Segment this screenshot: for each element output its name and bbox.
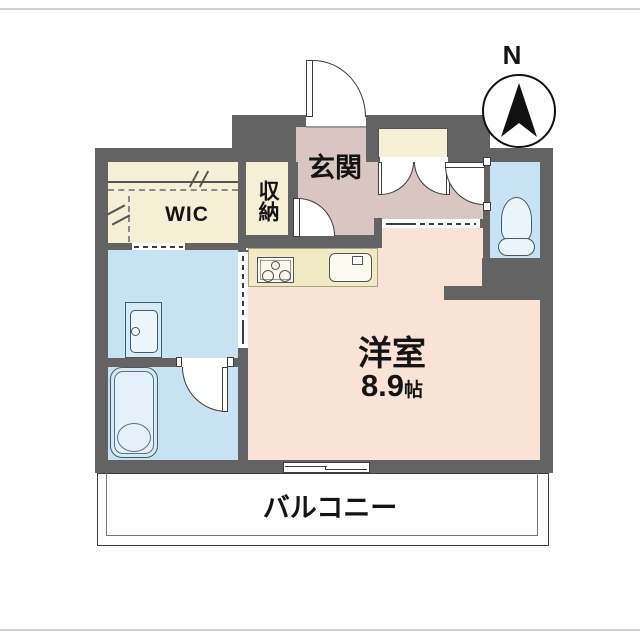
room-main-right (482, 300, 540, 460)
sliding-door-dashes (420, 223, 476, 225)
stove-burner (279, 270, 291, 282)
image-bottom-border (0, 629, 640, 631)
balcony-label: バルコニー (210, 486, 450, 525)
bathtub-icon (110, 367, 158, 458)
wic-shelf-dashed (108, 189, 238, 191)
wall-segment (540, 148, 553, 473)
washroom-sliding-door (238, 252, 248, 348)
main-room-sliding-door (382, 219, 480, 228)
faucet (352, 256, 363, 265)
toilet-door-leaf (445, 162, 485, 168)
wall-segment (443, 148, 553, 162)
wall-segment (296, 115, 306, 127)
storage-label: 収納 (254, 170, 280, 232)
entrance-label: 玄関 (296, 146, 374, 185)
kitchen-sink-icon (329, 253, 372, 282)
stove-burner (271, 261, 280, 270)
toilet-door-jamb (483, 157, 491, 166)
closet-door-left-leaf (378, 162, 382, 195)
wall-segment (374, 218, 382, 235)
compass-north-label: N (477, 40, 547, 71)
wall-segment (95, 148, 108, 473)
entrance-threshold (306, 126, 366, 128)
toilet-tank (498, 238, 535, 256)
stove-icon (257, 257, 294, 283)
hall-closet (378, 128, 448, 158)
wall-segment (238, 235, 382, 248)
compass-needle-icon (484, 76, 554, 146)
image-top-border (0, 8, 640, 10)
storage-door-leaf (293, 198, 300, 237)
stove-burner (262, 270, 274, 282)
sliding-door-dashes (242, 256, 244, 316)
bathroom-door-leaf (222, 367, 228, 412)
compass-icon (482, 74, 556, 148)
main-room-size-value: 8.9 (361, 368, 404, 403)
bathroom-door-jamb (176, 357, 182, 367)
bathtub-curve (117, 423, 151, 452)
floor-plan: N 玄関 収納 WIC 洋室 8.9帖 バルコニー (0, 0, 640, 640)
wall-segment (232, 115, 296, 162)
sliding-door-dashes (134, 246, 183, 248)
toilet-icon (501, 197, 532, 244)
wic-sliding-door (132, 243, 185, 250)
sliding-door-rail (242, 320, 244, 344)
vanity-drain (131, 327, 140, 336)
wall-segment (444, 286, 553, 300)
sliding-door-rail (386, 223, 416, 225)
entrance-door-swing (313, 60, 366, 117)
bathroom-door-opening (180, 358, 228, 367)
vanity-sink-icon (125, 302, 162, 358)
main-room-size: 8.9帖 (328, 368, 456, 404)
bathroom-door-jamb (227, 357, 234, 367)
window-pane (285, 466, 327, 467)
balcony-window (283, 462, 370, 473)
entrance-door-leaf (306, 60, 313, 117)
wic-hanger-pipe (108, 181, 238, 183)
main-room-size-unit: 帖 (404, 380, 423, 401)
wic-side-dashed (128, 196, 130, 242)
toilet-door-jamb (483, 202, 491, 211)
wic-label: WIC (156, 203, 218, 227)
window-pane (325, 469, 367, 470)
